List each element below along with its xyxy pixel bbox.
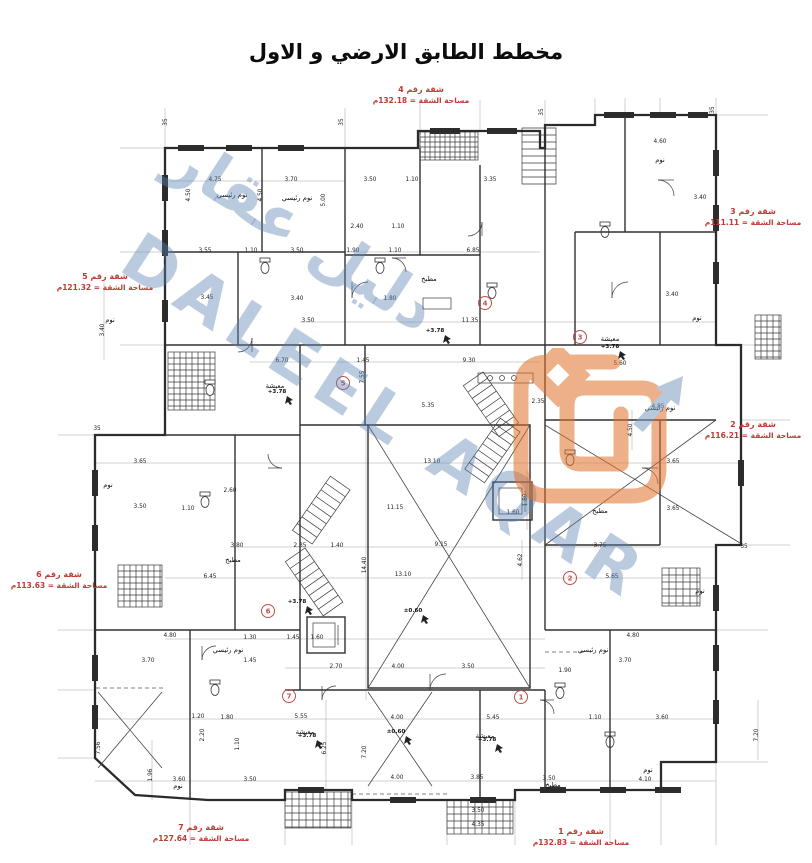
unit-number: 7 [287,693,292,701]
apartment-number: شقة رقم 5 [46,271,164,283]
elevation-arrow-icon [421,615,429,624]
dimension-label: 2.70 [330,664,343,670]
dimension-label: 3.50 [462,664,475,670]
apartment-area: مساحة الشقة = 116.21م [694,431,812,442]
unit-number: 5 [341,380,346,388]
unit-number: 3 [578,334,583,342]
room-label: مطبخ [592,507,608,515]
elevation-mark: +3.78 [478,737,497,743]
dimension-label: 1.96 [148,768,154,781]
apartment-label-3: شقة رقم 3 مساحة الشقة = 111.11م [694,206,812,228]
elevation-mark: +3.78 [298,733,317,739]
dimension-label: 1.90 [347,248,360,254]
room-label: مطبخ [421,275,437,283]
room-label: مطبخ [545,781,561,789]
dimension-label: 1.60 [311,635,324,641]
apartment-area: مساحة الشقة = 113.63م [0,581,118,592]
apartment-number: شقة رقم 6 [0,569,118,581]
apartment-area: مساحة الشقة = 132.83م [522,838,640,849]
apartment-number: شقة رقم 3 [694,206,812,218]
dimension-label: 14.40 [362,556,368,573]
dimension-label: 11.15 [387,505,404,511]
apartment-number: شقة رقم 4 [362,84,480,96]
apartment-area: مساحة الشقة = 132.18م [362,96,480,107]
room-label: نوم [695,587,705,595]
dimension-label: 3.70 [142,658,155,664]
dimension-label: 3.40 [291,296,304,302]
dimension-label: 3.40 [694,195,707,201]
dimension-label: 7.20 [362,745,368,758]
dimension-label: 4.80 [627,633,640,639]
unit-number: 4 [483,300,488,308]
door-swing [612,282,628,298]
apartment-label-2: شقة رقم 2 مساحة الشقة = 116.21م [694,419,812,441]
room-label: نوم رئيسي [213,646,244,654]
dimension-label: 1.10 [589,715,602,721]
toilet-fixture [488,288,496,299]
room-label: نوم [105,316,115,324]
floorplan-drawing: 4.753.703.501.103.354.603.402.401.103.55… [0,0,812,863]
dimension-label: 2.20 [200,728,206,741]
dimension-label: 1.10 [392,224,405,230]
outer-wall-outline [95,115,741,800]
dimension-label: 5.60 [614,361,627,367]
elevation-mark: ±0.60 [404,608,423,614]
room-label: نوم رئيسي [578,646,609,654]
dimension-label: 9.30 [463,358,476,364]
dimension-label: 3.45 [201,295,214,301]
dimension-label: 7.55 [360,370,366,383]
kitchen-counter [478,373,533,383]
void-diagonals [98,420,740,786]
door-swing [352,282,368,298]
dimension-label: 7.56 [96,741,102,754]
dimension-label: 4.60 [654,139,667,145]
door-swing [540,700,554,714]
dimension-label: 1.10 [245,248,258,254]
dimension-label: 1.10 [389,248,402,254]
dimension-label: 35 [740,544,748,550]
elevation-arrow-icon [443,335,451,344]
dimension-label: 5.35 [422,403,435,409]
apartment-label-1: شقة رقم 1 مساحة الشقة = 132.83م [522,826,640,848]
toilet-fixture [566,455,574,466]
dimension-label: 13.10 [424,459,441,465]
room-label: نوم رئيسي [645,404,676,412]
dimension-label: 3.65 [667,459,680,465]
dimension-label: 35 [93,426,101,432]
dimension-label: 9.15 [435,542,448,548]
dimension-label: 3.60 [656,715,669,721]
apartment-area: مساحة الشقة = 111.11م [694,218,812,229]
unit-number: 6 [266,608,271,616]
room-label: مطبخ [225,556,241,564]
dimension-label: 1.80 [384,296,397,302]
dimension-label: 7.20 [754,728,760,741]
dimension-label: 3.35 [484,177,497,183]
dimension-label: 4.75 [209,177,222,183]
elevation-arrow-icon [618,351,626,360]
dimension-label: 3.40 [666,292,679,298]
dimension-label: 6.45 [204,574,217,580]
dimension-label: 4.10 [639,777,652,783]
apartment-area: مساحة الشقة = 121.32م [46,283,164,294]
dimension-label: 11.35 [462,318,479,324]
elevation-mark: ±0.60 [387,729,406,735]
dimension-label: 1.30 [244,635,257,641]
dimension-label: 3.65 [667,506,680,512]
unit-number: 1 [519,694,524,702]
elevation-arrow-icon [305,606,313,615]
elevation-arrow-icon [495,744,503,753]
door-swing [322,686,336,700]
dimension-label: 3.55 [199,248,212,254]
elevation-mark: +3.78 [268,389,287,395]
dimension-label: 35 [163,118,169,126]
dimension-label: 1.90 [559,668,572,674]
apartment-label-6: شقة رقم 6 مساحة الشقة = 113.63م [0,569,118,591]
elevation-arrow-icon [404,736,412,745]
dimension-label: 5.00 [321,193,327,206]
room-label: نوم [655,156,665,164]
room-label: معيشة [601,335,620,343]
door-swing [658,180,674,196]
dimension-label: 3.50 [302,318,315,324]
dimension-label: 13.10 [395,572,412,578]
dimension-label: 4.00 [391,775,404,781]
apartment-label-5: شقة رقم 5 مساحة الشقة = 121.32م [46,271,164,293]
dimension-label: 1.80 [523,493,529,506]
dimension-label: 4.50 [628,423,634,436]
dimension-label: 2.35 [294,543,307,549]
dimension-label: 3.50 [472,808,485,814]
dimension-label: 4.00 [391,715,404,721]
dimension-label: 4.00 [392,664,405,670]
dimension-label: 3.80 [231,543,244,549]
toilet-fixture [376,263,384,274]
toilet-fixture [206,385,214,396]
room-label: نوم [173,782,183,790]
dimension-label: 1.10 [406,177,419,183]
toilet-fixture [261,263,269,274]
dimension-label: 6.70 [276,358,289,364]
room-label: نوم رئيسي [217,191,248,199]
door-swing [268,454,282,468]
dimension-label: 1.45 [287,635,300,641]
toilet-fixture [211,685,219,696]
door-swing [392,258,406,272]
dimension-label: 1.10 [235,737,241,750]
dimension-label: 3.50 [244,777,257,783]
dimension-label: 5.45 [487,715,500,721]
dimension-label: 5.65 [606,574,619,580]
apartment-label-4: شقة رقم 4 مساحة الشقة = 132.18م [362,84,480,106]
room-label: نوم رئيسي [282,194,313,202]
dimension-label: 35 [539,108,545,116]
dimension-label: 35 [339,118,345,126]
elevation-mark: +3.78 [288,599,307,605]
apartment-number: شقة رقم 7 [142,822,260,834]
apartment-number: شقة رقم 1 [522,826,640,838]
dimension-label: 3.75 [594,543,607,549]
apartment-area: مساحة الشقة = 127.64م [142,834,260,845]
apartment-label-7: شقة رقم 7 مساحة الشقة = 127.64م [142,822,260,844]
toilet-fixture [556,688,564,699]
toilet-fixture [201,497,209,508]
dimension-label: 3.50 [291,248,304,254]
dimension-label: 6.85 [467,248,480,254]
dimension-label: 3.50 [134,504,147,510]
room-label: نوم [103,481,113,489]
dimension-label: 2.60 [224,488,237,494]
dimension-label: 35 [710,106,716,114]
dimension-label: 4.50 [258,188,264,201]
dimension-label: 6.25 [322,741,328,754]
dimension-label: 4.80 [164,633,177,639]
unit-number: 2 [568,575,573,583]
interior-walls [95,115,716,800]
dimension-label: 1.80 [221,715,234,721]
apartment-number: شقة رقم 2 [694,419,812,431]
floorplan-page: مخطط الطابق الارضي و الاول 4.753.703.501… [0,0,812,863]
dimension-label: 4.62 [518,553,524,566]
dimension-label: 1.40 [331,543,344,549]
elevation-mark: +3.78 [601,344,620,350]
dimension-label: 5.55 [295,714,308,720]
room-label: نوم [692,314,702,322]
dimension-label: 2.35 [532,399,545,405]
dimension-label: 1.10 [182,506,195,512]
dimension-label: 3.70 [285,177,298,183]
room-label: نوم [643,766,653,774]
dimension-label: 1.60 [507,510,520,516]
dimension-label: 1.45 [244,658,257,664]
dimension-label: 3.70 [619,658,632,664]
dimension-label: 4.35 [472,822,485,828]
dimension-label: 1.45 [357,358,370,364]
dimension-label: 3.50 [364,177,377,183]
dimension-label: 3.85 [471,775,484,781]
dimension-label: 3.40 [100,323,106,336]
elevation-mark: +3.78 [426,328,445,334]
dimension-label: 4.50 [186,188,192,201]
dimension-label: 1.20 [192,714,205,720]
dimension-label: 2.40 [351,224,364,230]
dimension-label: 3.65 [134,459,147,465]
door-swing [642,468,658,484]
kitchen-counter [423,298,451,309]
elevation-arrow-icon [285,396,293,405]
